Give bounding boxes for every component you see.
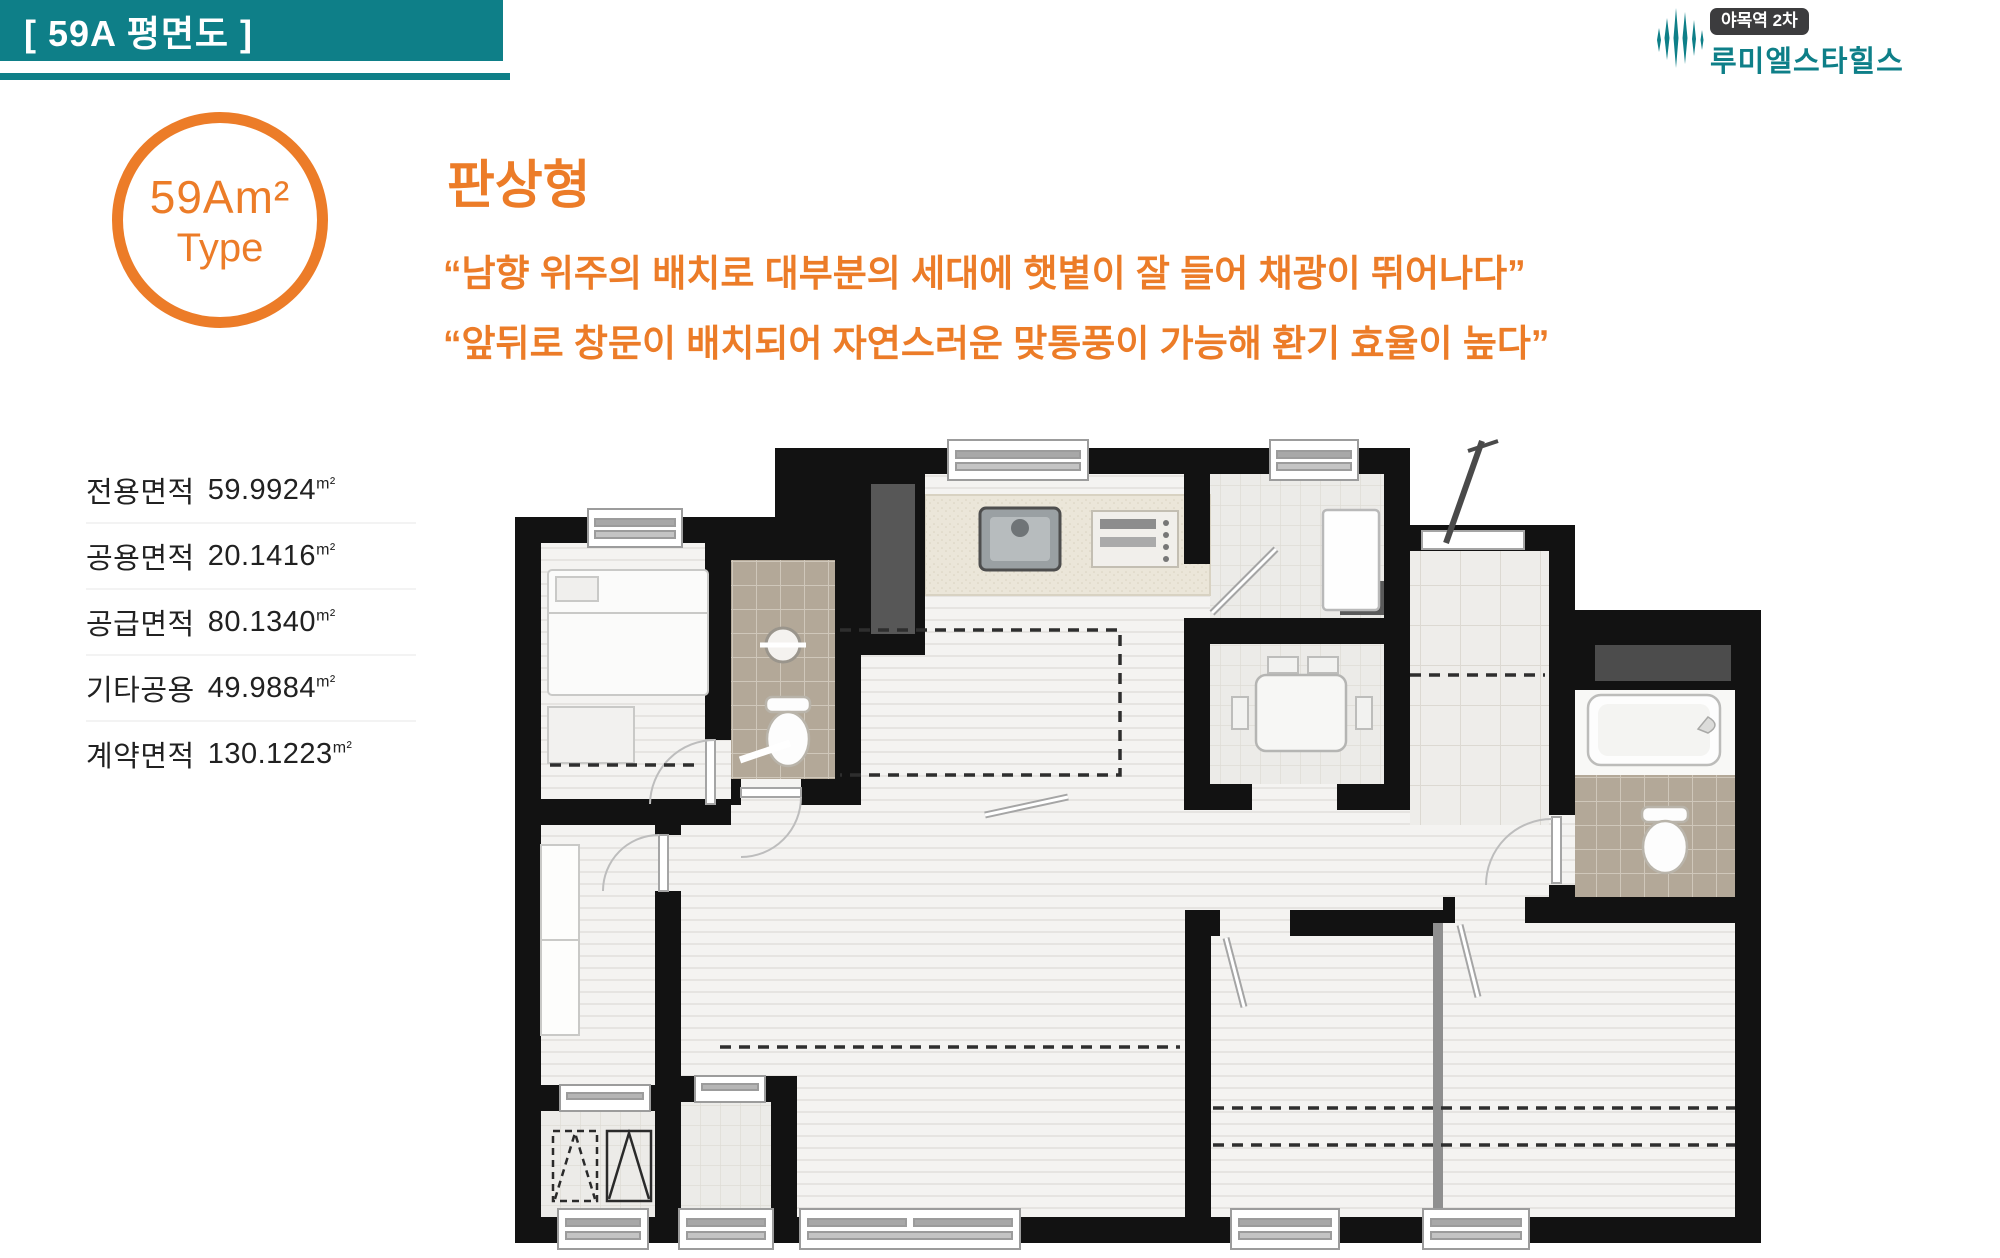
entry-floor xyxy=(1410,551,1549,825)
living-window xyxy=(800,1209,1020,1249)
refrigerator xyxy=(1323,510,1379,610)
area-row-common: 공용면적 20.1416m² xyxy=(86,524,416,590)
cooktop xyxy=(1092,511,1178,567)
header-underline xyxy=(0,73,510,80)
area-label: 기타공용 xyxy=(86,667,195,709)
area-value: 20.1416m² xyxy=(208,540,336,573)
duct-shaft xyxy=(871,484,915,634)
bathtub xyxy=(1588,695,1720,765)
area-row-supply: 공급면적 80.1340m² xyxy=(86,590,416,656)
storage-shaft xyxy=(1595,645,1731,681)
area-label: 전용면적 xyxy=(86,469,195,511)
boiler-room-floor xyxy=(681,1102,771,1217)
area-row-contract: 계약면적 130.1223m² xyxy=(86,722,416,786)
toilet-1 xyxy=(766,697,810,766)
floor-plan xyxy=(420,345,1780,1250)
entry-door xyxy=(1422,441,1524,549)
area-value: 80.1340m² xyxy=(208,606,336,639)
kitchen-window xyxy=(948,440,1088,480)
balcony-window-mid xyxy=(560,1085,650,1111)
wardrobe xyxy=(541,845,579,1035)
quote-line-1: “남향 위주의 배치로 대부분의 세대에 햇볕이 잘 들어 채광이 뛰어나다” xyxy=(443,243,1526,297)
bedroom2-window xyxy=(1231,1209,1339,1249)
bed xyxy=(548,570,708,695)
light-partition xyxy=(1433,923,1443,1217)
unit-type-badge: 59Am² Type xyxy=(112,112,328,328)
layout-type-title: 판상형 xyxy=(447,143,591,218)
area-value: 130.1223m² xyxy=(208,738,353,771)
utility-window xyxy=(1270,440,1358,480)
area-value: 49.9884m² xyxy=(208,672,336,705)
desk xyxy=(548,707,634,763)
area-row-exclusive: 전용면적 59.9924m² xyxy=(86,458,416,524)
master-window xyxy=(1423,1209,1529,1249)
header-banner: [ 59A 평면도 ] xyxy=(0,0,503,61)
area-table: 전용면적 59.9924m² 공용면적 20.1416m² 공급면적 80.13… xyxy=(86,458,416,786)
unit-type-size: 59Am² xyxy=(150,170,290,224)
logo-badge: 야목역 2차 xyxy=(1710,8,1809,35)
area-label: 공급면적 xyxy=(86,601,195,643)
brand-logo: 야목역 2차 루미엘스타힐스 xyxy=(1650,4,2000,74)
area-value: 59.9924m² xyxy=(208,474,336,507)
boiler-window-bottom xyxy=(679,1209,773,1249)
page-title: [ 59A 평면도 ] xyxy=(0,5,253,57)
boiler-window-top xyxy=(695,1076,765,1102)
logo-name: 루미엘스타힐스 xyxy=(1710,38,1904,80)
page: { "header": { "title": "[ 59A 평면도 ]" }, … xyxy=(0,0,2000,1258)
area-row-other: 기타공용 49.9884m² xyxy=(86,656,416,722)
area-label: 계약면적 xyxy=(86,733,195,775)
kitchen-sink xyxy=(980,508,1060,570)
area-label: 공용면적 xyxy=(86,535,195,577)
balcony-window-bottom xyxy=(558,1209,648,1249)
logo-spikes-icon xyxy=(1654,6,1706,70)
toilet-2 xyxy=(1642,807,1688,873)
unit-type-label: Type xyxy=(177,226,264,271)
bedroom3-window xyxy=(588,509,682,547)
